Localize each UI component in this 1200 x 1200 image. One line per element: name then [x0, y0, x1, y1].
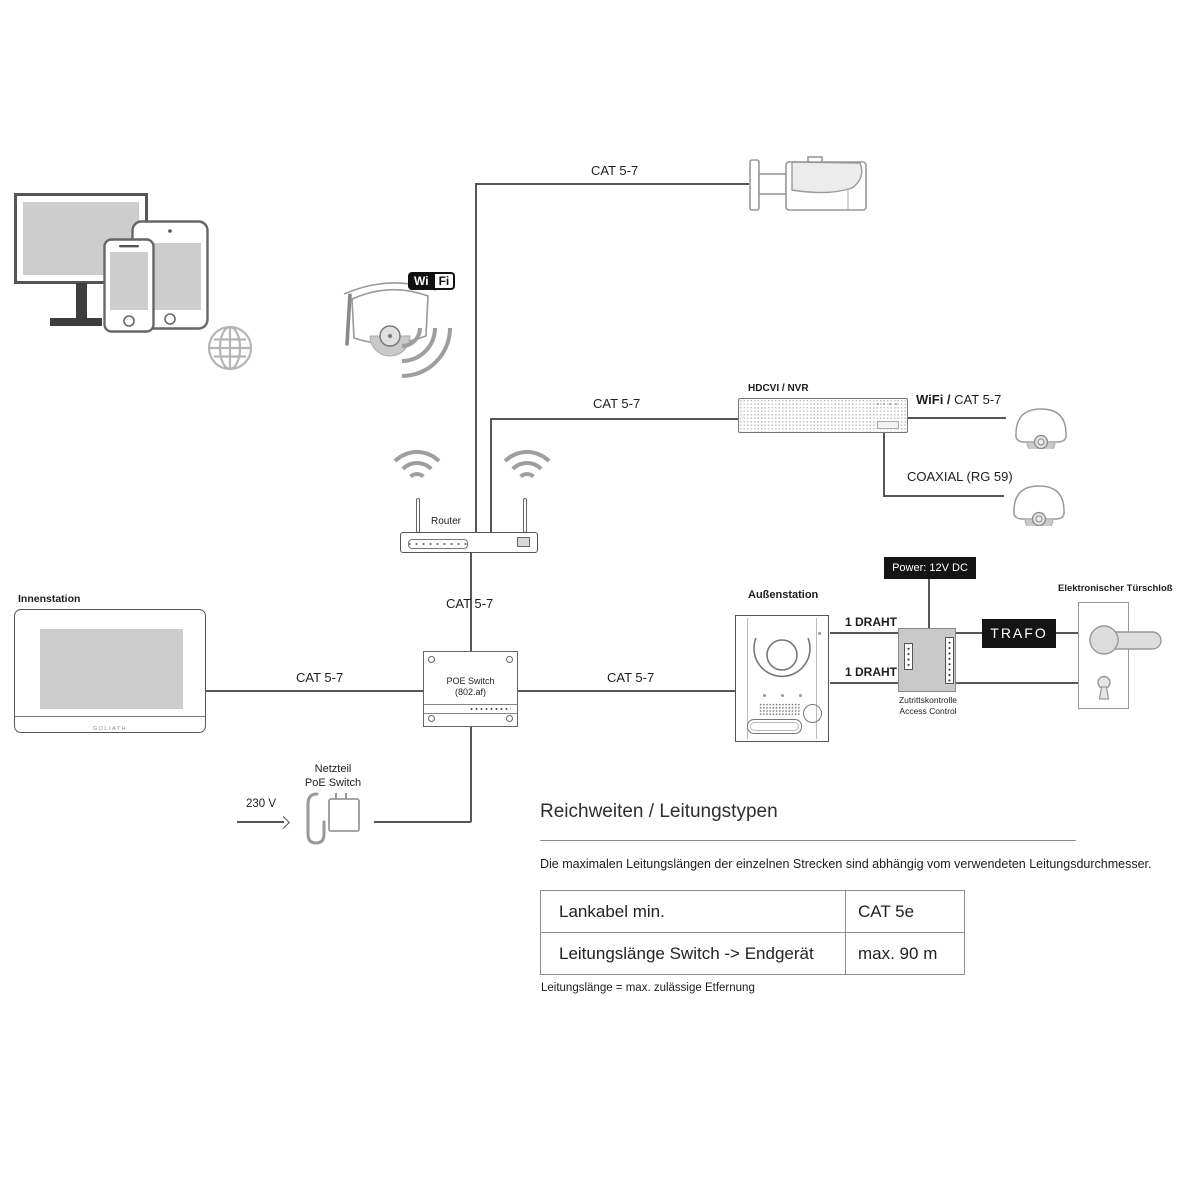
trafo-box: TRAFO [982, 619, 1056, 648]
cable-switch-aussen [518, 690, 735, 692]
cable-nvr-down [883, 432, 885, 495]
dome-camera-2-icon [1010, 481, 1068, 526]
access-control-label-de: Zutrittskontrolle [883, 695, 973, 706]
screw-icon [506, 656, 513, 663]
table-row: Leitungslänge Switch -> Endgerät max. 90… [541, 932, 964, 974]
wire-draht-top [830, 632, 898, 634]
arrow-230v-head [277, 816, 290, 829]
voltage-label: 230 V [246, 798, 276, 810]
cable-table: Lankabel min. CAT 5e Leitungslänge Switc… [540, 890, 965, 975]
terminal-strip-right [945, 637, 954, 684]
cable-router-up-left [475, 183, 477, 533]
name-plate-inner [750, 722, 799, 731]
table-cell-label: Leitungslänge Switch -> Endgerät [541, 933, 846, 974]
router-antenna-right [523, 498, 527, 533]
aussenstation-device [735, 615, 829, 742]
screw-icon [428, 715, 435, 722]
globe-icon [206, 324, 254, 372]
label-wifi-cat57: WiFi / CAT 5-7 [916, 392, 1001, 407]
label-cat57-innen-switch: CAT 5-7 [296, 670, 343, 685]
panel-dot [781, 694, 784, 697]
heading-rule [540, 840, 1076, 841]
cable-netzteil-up [470, 727, 472, 822]
cable-innen-switch [206, 690, 423, 692]
label-draht-top: 1 DRAHT [845, 615, 897, 629]
label-cat57-router-nvr: CAT 5-7 [593, 396, 640, 411]
table-footnote: Leitungslänge = max. zulässige Etfernung [541, 982, 755, 994]
poe-switch-name: POE Switch [424, 676, 517, 687]
nvr-device [738, 398, 908, 433]
router-led-strip [408, 539, 468, 549]
innenstation-device: GOLIATH [14, 609, 206, 733]
wire-power-access [928, 579, 930, 628]
poe-port-dots [469, 707, 511, 711]
power-adapter-icon [303, 790, 365, 848]
router-antenna-left [416, 498, 420, 533]
screw-icon [428, 656, 435, 663]
dome-camera-1-icon [1012, 404, 1070, 449]
wire-access-trafo [956, 632, 982, 634]
network-diagram: WiFi Router HDCVI / NVR [0, 0, 1200, 1200]
name-plate [747, 719, 802, 734]
nvr-indicator-lights [875, 402, 901, 406]
door-lock-label: Elektronischer Türschloß [1058, 583, 1158, 594]
table-cell-label: Lankabel min. [541, 891, 846, 932]
bullet-camera-icon [748, 144, 870, 220]
nvr-label: HDCVI / NVR [748, 383, 809, 394]
section-heading: Reichweiten / Leitungstypen [540, 801, 778, 823]
doorbell-camera-icon [750, 624, 814, 690]
table-cell-value: max. 90 m [846, 933, 964, 974]
label-wifi-prefix: WiFi / [916, 392, 951, 407]
smartphone-icon [103, 238, 155, 333]
aussenstation-label: Außenstation [748, 589, 818, 601]
label-draht-bottom: 1 DRAHT [845, 665, 897, 679]
cable-nvr-dome1 [908, 417, 1006, 419]
wire-access-lock [956, 682, 1078, 684]
terminal-strip-left [904, 643, 913, 670]
door-handle-icon [1088, 624, 1163, 658]
router-port [517, 537, 530, 547]
power-supply-box: Power: 12V DC [884, 557, 976, 579]
call-button [803, 704, 822, 723]
wire-draht-bottom [830, 682, 898, 684]
speaker-grille [759, 703, 801, 715]
nvr-buttons [877, 421, 899, 429]
brand-logo: GOLIATH [93, 726, 127, 732]
keyhole-icon [1095, 675, 1113, 703]
table-row: Lankabel min. CAT 5e [541, 891, 964, 932]
cable-router-up-right [490, 418, 492, 533]
table-cell-value: CAT 5e [846, 891, 964, 932]
cable-netzteil-switch [374, 821, 471, 823]
label-cat57-router-switch: CAT 5-7 [446, 596, 493, 611]
innenstation-screen [40, 629, 183, 709]
netzteil-label-1: Netzteil [299, 762, 367, 776]
router-device [400, 532, 538, 553]
cable-router-nvr [490, 418, 738, 420]
innenstation-bottom-bar: GOLIATH [15, 716, 205, 732]
netzteil-label-block: Netzteil PoE Switch [299, 762, 367, 790]
label-cat57-top: CAT 5-7 [591, 163, 638, 178]
innenstation-label: Innenstation [18, 593, 80, 605]
panel-dot [763, 694, 766, 697]
access-control-device [898, 628, 956, 692]
router-label: Router [431, 516, 461, 527]
wifi-badge-fi: Fi [435, 272, 456, 290]
status-led [818, 632, 821, 635]
cable-top-cat57 [475, 183, 749, 185]
access-control-label-block: Zutrittskontrolle Access Control [883, 695, 973, 716]
screw-icon [506, 715, 513, 722]
label-coaxial: COAXIAL (RG 59) [907, 469, 1013, 484]
poe-switch-standard: (802.af) [424, 687, 517, 698]
wire-trafo-lock [1056, 632, 1078, 634]
panel-dot [799, 694, 802, 697]
cable-coaxial-dome2 [883, 495, 1004, 497]
label-wifi-cat: CAT 5-7 [954, 392, 1001, 407]
router-wave-right-3 [494, 450, 560, 516]
netzteil-label-2: PoE Switch [299, 776, 367, 790]
section-description: Die maximalen Leitungslängen der einzeln… [540, 857, 1151, 871]
access-control-label-en: Access Control [883, 706, 973, 717]
label-cat57-switch-aussen: CAT 5-7 [607, 670, 654, 685]
poe-switch-label-block: POE Switch (802.af) [424, 676, 517, 698]
poe-switch-device: POE Switch (802.af) [423, 651, 518, 727]
